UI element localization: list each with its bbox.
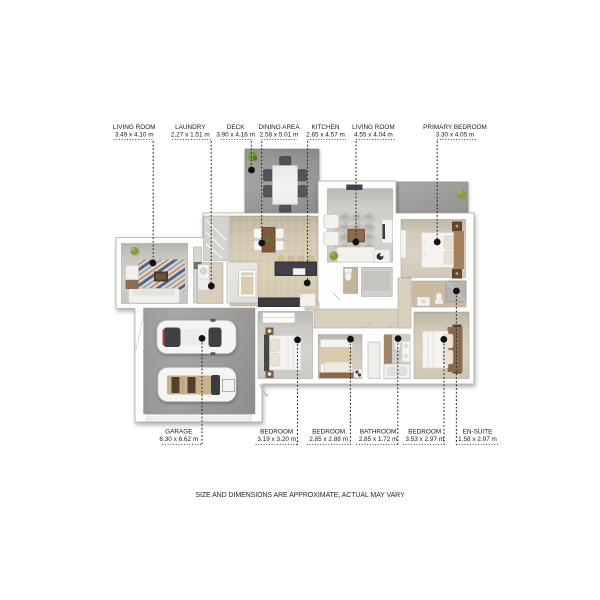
svg-text:DECK: DECK (227, 124, 245, 131)
svg-text:3.53 x 2.97 m: 3.53 x 2.97 m (405, 436, 444, 443)
svg-text:BEDROOM: BEDROOM (260, 429, 293, 436)
svg-text:PRIMARY BEDROOM: PRIMARY BEDROOM (423, 124, 487, 131)
svg-text:LIVING ROOM: LIVING ROOM (113, 124, 156, 131)
svg-text:KITCHEN: KITCHEN (311, 124, 339, 131)
svg-text:2.58 x 5.01 m: 2.58 x 5.01 m (260, 132, 299, 139)
svg-text:1.58 x 2.97 m: 1.58 x 2.97 m (458, 436, 497, 443)
svg-text:DINING AREA: DINING AREA (258, 124, 300, 131)
svg-text:2.85 x 2.88 m: 2.85 x 2.88 m (309, 436, 348, 443)
svg-text:GARAGE: GARAGE (165, 429, 192, 436)
svg-text:3.90 x 4.16 m: 3.90 x 4.16 m (216, 132, 255, 139)
svg-text:BEDROOM: BEDROOM (408, 429, 441, 436)
svg-text:2.65 x 4.57 m: 2.65 x 4.57 m (306, 132, 345, 139)
svg-text:3.19 x 3.20 m: 3.19 x 3.20 m (257, 436, 296, 443)
svg-text:4.55 x 4.04 m: 4.55 x 4.04 m (354, 132, 393, 139)
svg-text:BATHROOM: BATHROOM (360, 429, 396, 436)
svg-text:3.30 x 4.05 m: 3.30 x 4.05 m (436, 132, 475, 139)
svg-text:LIVING ROOM: LIVING ROOM (352, 124, 395, 131)
svg-text:LAUNDRY: LAUNDRY (175, 124, 206, 131)
svg-text:3.49 x 4.10 m: 3.49 x 4.10 m (115, 132, 154, 139)
svg-text:EN-SUITE: EN-SUITE (463, 429, 493, 436)
svg-text:2.85 x 1.72 m: 2.85 x 1.72 m (359, 436, 398, 443)
svg-text:BEDROOM: BEDROOM (312, 429, 345, 436)
svg-text:SIZE AND DIMENSIONS ARE APPROX: SIZE AND DIMENSIONS ARE APPROXIMATE, ACT… (195, 492, 405, 499)
svg-text:6.30 x 6.62 m: 6.30 x 6.62 m (159, 436, 198, 443)
svg-text:2.27 x 1.51 m: 2.27 x 1.51 m (171, 132, 210, 139)
